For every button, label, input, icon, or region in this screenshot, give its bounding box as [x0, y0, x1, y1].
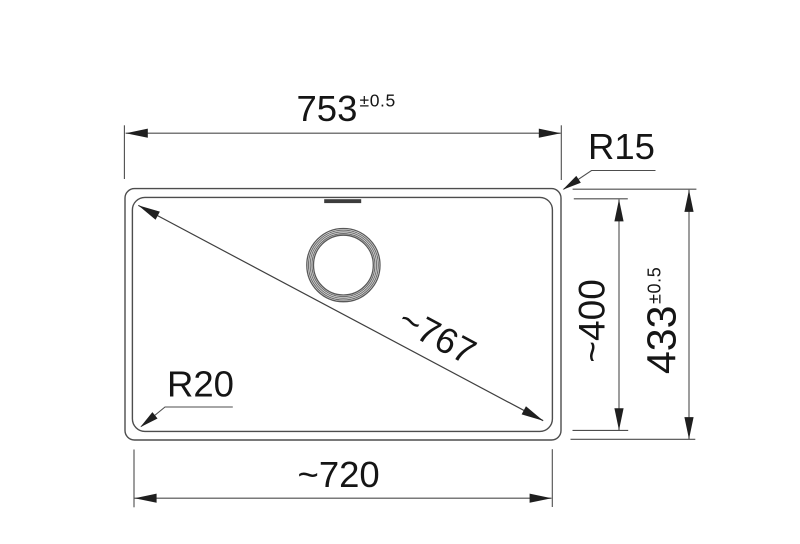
svg-text:±0.5: ±0.5 [360, 90, 396, 110]
svg-text:R15: R15 [588, 126, 655, 167]
svg-text:~400: ~400 [572, 279, 613, 362]
svg-text:~767: ~767 [392, 298, 483, 372]
svg-text:R20: R20 [167, 363, 234, 404]
svg-text:433: 433 [639, 306, 685, 374]
svg-text:~720: ~720 [298, 454, 380, 495]
svg-text:±0.5: ±0.5 [645, 267, 665, 304]
svg-text:753: 753 [297, 88, 358, 129]
